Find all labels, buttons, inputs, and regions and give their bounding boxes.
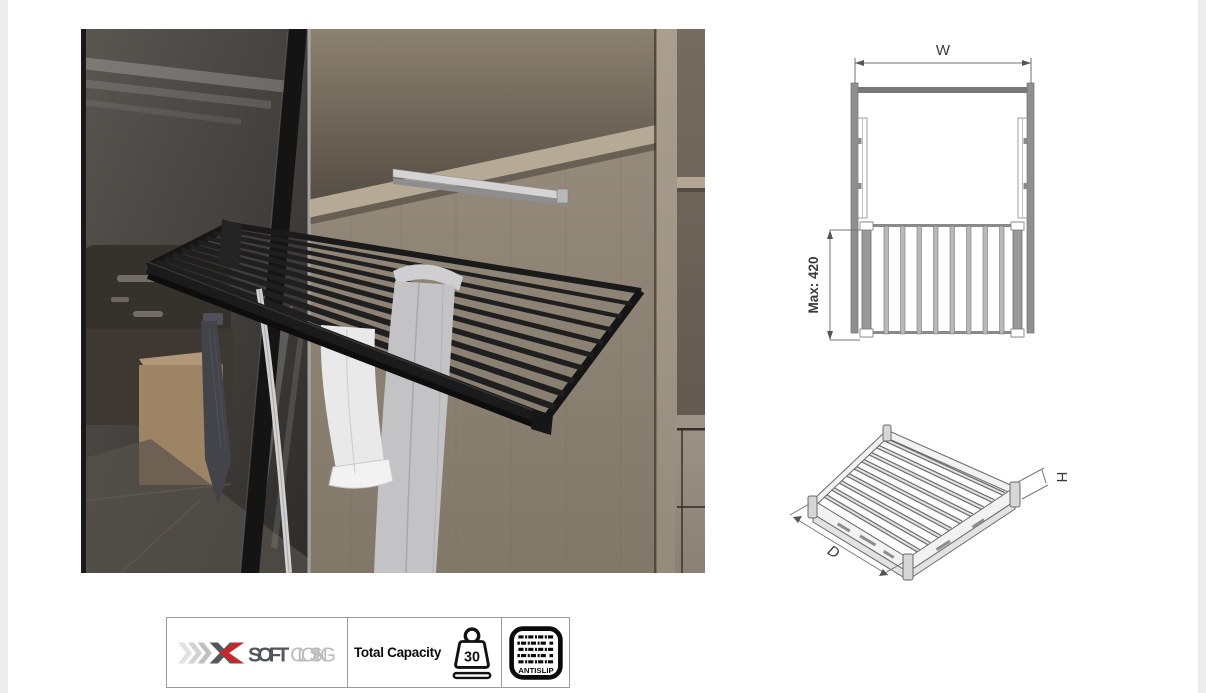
capacity-value: 30 [464,649,480,665]
red-arrow-icon [219,642,244,663]
right-shelf-edge [677,177,705,188]
chevron-icons [178,642,212,663]
divider-panel [656,29,677,573]
dim-arrow-right [1022,60,1031,66]
max-420-label: Max: 420 [806,256,821,313]
width-dimension [855,58,1031,84]
rack-front-view [860,222,1024,337]
left-edge-strip [0,0,8,693]
door-track [308,29,311,573]
weight-icon: 30 [449,626,495,680]
x-mark-icon [210,642,245,663]
slide-channels [858,118,1027,218]
left-post [851,83,858,333]
height-label: H [1053,472,1070,483]
dim-arrow-left [855,60,864,66]
glass-door [81,29,311,573]
height-dimension [1018,468,1048,499]
soft-closing-badge: SOFT CLOSING [167,618,347,687]
front-view-diagram: W Max: 420 [800,38,1045,358]
dim-arrow-up [827,230,833,239]
rack-bars [884,226,1004,334]
rack-left-profile [862,222,871,337]
drawer-unit [675,415,705,573]
product-photo [81,29,705,573]
top-bar [858,87,1027,93]
closing-text: CLOSING [290,644,335,666]
depth-label: D [824,542,842,562]
total-capacity-badge: Total Capacity 30 [347,618,501,687]
rack-right-profile [1013,222,1022,337]
antislip-icon: ANTISLIP [508,625,564,681]
divider-edge [654,29,657,573]
door-left-frame [81,29,86,573]
right-edge-strip [1198,0,1206,693]
rack-mount-bracket [219,219,242,269]
right-shelf-shadow [677,188,705,192]
feature-badges-bar: SOFT CLOSING Total Capacity 30 [166,617,570,688]
antislip-label: ANTISLIP [518,666,553,675]
width-dimension-label: W [936,42,951,59]
soft-closing-logo: SOFT CLOSING [178,635,336,671]
antislip-badge: ANTISLIP [501,618,569,687]
soft-text: SOFT [248,644,290,666]
total-capacity-label: Total Capacity [354,645,441,660]
dim-arrow-down [827,331,833,340]
right-post [1027,83,1034,333]
iso-view-diagram: D H [785,412,1075,590]
